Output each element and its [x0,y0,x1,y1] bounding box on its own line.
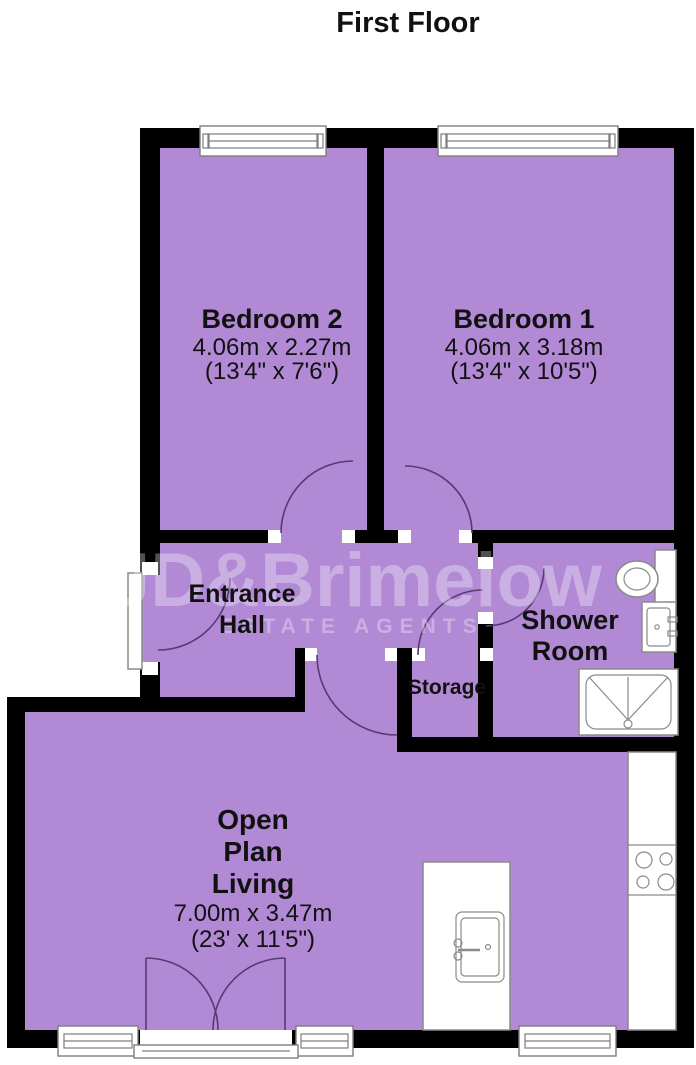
open-plan-living-imperial: (23' x 11'5") [191,926,315,953]
jamb [480,648,493,661]
shower-room-label-2: Room [532,636,609,666]
window-bedroom1 [438,126,618,156]
bedroom2-imperial: (13'4" x 7'6") [205,358,339,385]
shower-room-label-1: Shower [521,605,619,635]
entrance-hall-label-1: Entrance [189,580,296,608]
open-plan-living-label-3: Living [212,868,294,899]
island-counter [423,862,510,1030]
entrance-hall-label-2: Hall [219,611,265,639]
bedroom1-metric: 4.06m x 3.18m [445,334,604,361]
jamb [385,648,397,661]
wall-left-lower [7,697,25,1048]
open-plan-living-label-2: Plan [223,836,282,867]
bedroom1-label: Bedroom 1 [453,304,594,334]
wall-left-upper [140,148,160,575]
counter-run [628,752,676,1030]
wall-storage-left [397,648,412,752]
window-bedroom2 [200,126,326,156]
kitchen-island [423,862,510,1030]
jamb [305,648,317,661]
wall-living-top [7,697,303,712]
wall-storage-shower-bottom [397,737,694,752]
shower-tray-icon [579,669,678,735]
floorplan-drawing: First Floor [0,0,696,1065]
open-plan-living-metric: 7.00m x 3.47m [174,900,333,927]
wall-bedroom-divider [367,148,384,530]
basin-icon [642,602,677,652]
storage-label: Storage [408,676,486,699]
window-kitchen [519,1026,616,1056]
kitchen-counter [628,752,676,1030]
window-living-left [58,1026,138,1056]
page-title: First Floor [336,7,479,39]
floorplan-page: First Floor [0,0,696,1065]
bedroom2-metric: 4.06m x 2.27m [193,334,352,361]
window-living-mid [296,1026,353,1056]
jamb [142,662,158,675]
bedroom1-imperial: (13'4" x 10'5") [450,358,598,385]
wall-right [674,128,694,1048]
bedroom2-label: Bedroom 2 [201,304,342,334]
open-plan-living-label-1: Open [217,804,289,835]
